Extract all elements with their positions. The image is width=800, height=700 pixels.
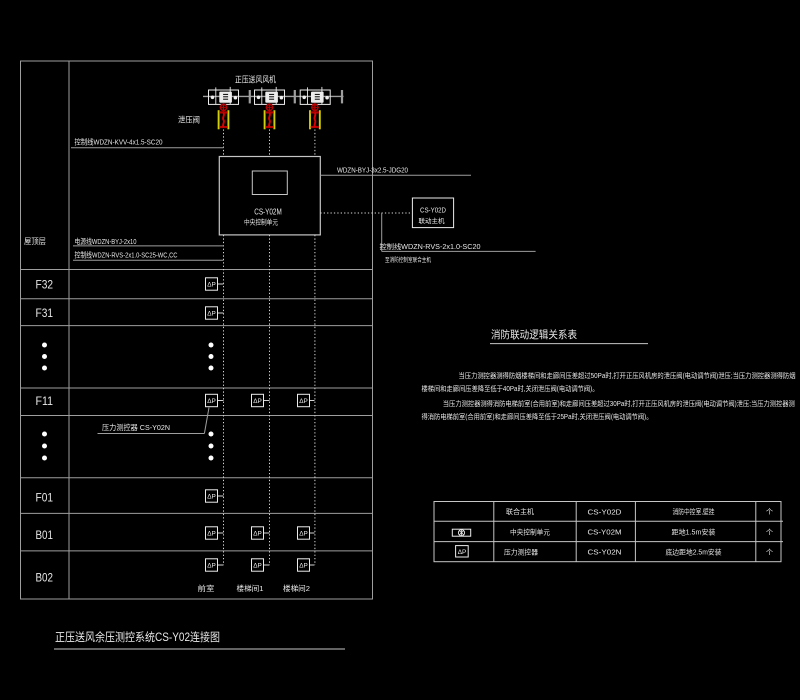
svg-text:个: 个 [766, 548, 773, 556]
svg-text:ΔP: ΔP [299, 530, 308, 537]
svg-text:个: 个 [766, 508, 773, 516]
svg-text:CS-Y02D: CS-Y02D [588, 507, 623, 516]
svg-text:控制线WDZN-RVS-2x1.0-SC25-WC,CC: 控制线WDZN-RVS-2x1.0-SC25-WC,CC [75, 251, 179, 260]
svg-text:电源线WDZN-BYJ-2x10: 电源线WDZN-BYJ-2x10 [75, 237, 137, 246]
svg-text:联合主机: 联合主机 [506, 507, 534, 516]
svg-text:ΔP: ΔP [253, 562, 262, 569]
svg-text:CS-Y02M: CS-Y02M [588, 528, 622, 537]
svg-text:联动主机: 联动主机 [419, 216, 446, 225]
svg-text:当压力测控器测得防烟楼梯间和走廊间压差超过50Pa时,打开正: 当压力测控器测得防烟楼梯间和走廊间压差超过50Pa时,打开正压风机房的泄压阀(电… [459, 371, 796, 380]
svg-text:正压送风余压测控系统CS-Y02连接图: 正压送风余压测控系统CS-Y02连接图 [55, 630, 220, 644]
svg-text:WDZN-BYJ-3x2.5-JDG20: WDZN-BYJ-3x2.5-JDG20 [337, 166, 408, 175]
svg-text:ΔP: ΔP [253, 398, 262, 405]
svg-text:B02: B02 [36, 571, 54, 585]
svg-text:ΔP: ΔP [207, 398, 216, 405]
svg-text:CS-Y02N: CS-Y02N [588, 548, 622, 557]
svg-text:F01: F01 [36, 491, 54, 505]
svg-text:ΔP: ΔP [207, 493, 216, 500]
svg-text:距地1.5m安装: 距地1.5m安装 [672, 527, 716, 536]
svg-text:当压力测控器测得消防电梯前室(合用前室)和走廊间压差超过30: 当压力测控器测得消防电梯前室(合用前室)和走廊间压差超过30Pa时,打开正压风机… [443, 399, 795, 408]
svg-text:前室: 前室 [198, 583, 216, 593]
svg-text:ΔP: ΔP [299, 398, 308, 405]
svg-text:压力测控器: 压力测控器 [504, 547, 538, 556]
svg-text:中央控制单元: 中央控制单元 [510, 527, 550, 536]
svg-text:控制线WDZN-RVS-2x1.0-SC20: 控制线WDZN-RVS-2x1.0-SC20 [380, 242, 481, 251]
svg-text:ΔP: ΔP [207, 530, 216, 537]
svg-text:楼梯间1: 楼梯间1 [237, 583, 264, 593]
svg-text:F31: F31 [36, 306, 54, 320]
svg-text:至消防控制室联合主机: 至消防控制室联合主机 [385, 256, 432, 264]
svg-text:泄压阀: 泄压阀 [178, 115, 200, 125]
svg-text:屋顶层: 屋顶层 [24, 237, 46, 246]
svg-text:底边距地2.5m安装: 底边距地2.5m安装 [666, 547, 722, 556]
svg-text:控制线WDZN-KVV-4x1.5-SC20: 控制线WDZN-KVV-4x1.5-SC20 [75, 138, 163, 147]
svg-text:压力测控器 CS-Y02N: 压力测控器 CS-Y02N [102, 422, 170, 432]
svg-text:ΔP: ΔP [207, 562, 216, 569]
svg-text:楼梯间和走廊间压差降至低于40Pa时,关闭泄压阀(电动调节阀: 楼梯间和走廊间压差降至低于40Pa时,关闭泄压阀(电动调节阀)。 [422, 384, 599, 393]
svg-text:中央控制单元: 中央控制单元 [244, 218, 278, 227]
svg-text:个: 个 [766, 528, 773, 536]
svg-text:F11: F11 [36, 394, 54, 408]
svg-text:CS-Y02D: CS-Y02D [420, 208, 446, 215]
svg-text:CS-Y02M: CS-Y02M [254, 208, 282, 217]
svg-text:楼梯间2: 楼梯间2 [283, 583, 310, 593]
svg-text:消防中控室,壁挂: 消防中控室,壁挂 [673, 507, 715, 516]
svg-text:B01: B01 [36, 528, 54, 542]
svg-text:ΔP: ΔP [207, 281, 216, 288]
svg-text:F32: F32 [36, 278, 54, 292]
svg-text:ΔP: ΔP [299, 562, 308, 569]
svg-text:ΔP: ΔP [207, 310, 216, 317]
svg-text:正压送风风机: 正压送风风机 [235, 74, 276, 84]
svg-text:得消防电梯前室(合用前室)和走廊间压差降至低于25Pa时,关: 得消防电梯前室(合用前室)和走廊间压差降至低于25Pa时,关闭泄压阀(电动调节阀… [422, 412, 653, 421]
svg-text:消防联动逻辑关系表: 消防联动逻辑关系表 [491, 328, 577, 341]
svg-text:ΔP: ΔP [253, 530, 262, 537]
svg-text:ΔP: ΔP [458, 549, 467, 556]
